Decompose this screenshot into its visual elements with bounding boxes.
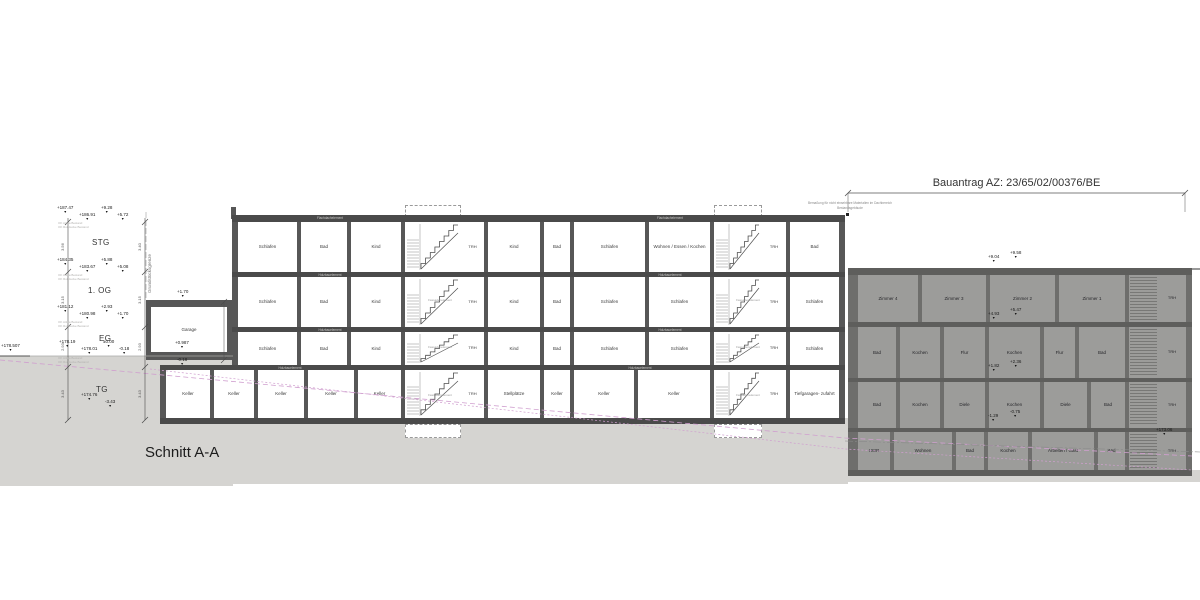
stair-element-label: Fassadenelement <box>425 345 455 349</box>
dark-room: Kochen <box>900 382 940 428</box>
dark-room: Arbeiten / Gast <box>1032 432 1094 470</box>
dark-room: Flur <box>944 327 985 378</box>
svg-text:3.40: 3.40 <box>137 242 142 251</box>
room: Keller <box>358 370 401 418</box>
staircase <box>405 222 461 272</box>
staircase <box>714 277 762 327</box>
floor-slab-label: Holzbauelement <box>630 328 710 332</box>
elevation-marker: -0.18 <box>119 347 129 356</box>
floor-level-label: 1. OG <box>88 286 111 295</box>
room: Bad <box>790 222 839 272</box>
room: Kind <box>488 277 540 327</box>
dark-room: Bad <box>858 382 896 428</box>
room: Schlafen <box>790 277 839 327</box>
staircase <box>405 277 461 327</box>
dark-room: Wohnen <box>894 432 952 470</box>
floor-level-label: STG <box>92 238 110 247</box>
dark-building-elevation-marker: +9.04 <box>988 255 999 264</box>
dark-building-elevation-marker: -1.29 <box>988 414 998 423</box>
stair-hatch <box>1130 277 1157 320</box>
dark-stairwell-label-cell: TRH <box>1158 327 1186 378</box>
dark-room: Bad <box>858 327 896 378</box>
dark-building-slab <box>848 470 1192 476</box>
dark-room: Kochen <box>900 327 940 378</box>
dark-building-elevation-marker: +5.47 <box>1010 308 1021 317</box>
stair-element-label: Fassadenelement <box>733 345 763 349</box>
svg-text:Grundstücksgrenze: Grundstücksgrenze <box>147 253 152 293</box>
dark-building-elevation-marker: +173.06 <box>1156 428 1172 437</box>
elevation-marker: +178.01 <box>81 347 97 356</box>
floor-slab-label: Holzbauelement <box>630 273 710 277</box>
elevation-marker: +184.35 <box>57 258 73 267</box>
staircase <box>714 222 762 272</box>
dark-room: Diele <box>1044 382 1087 428</box>
section-drawing-canvas: Schnitt A-A Bauantrag AZ: 23/65/02/00376… <box>0 0 1200 600</box>
room: Bad <box>544 277 570 327</box>
room: Schlafen <box>238 222 297 272</box>
sub-annotation: OK Rohdecke Bestand <box>58 226 89 230</box>
room: Bad <box>301 332 347 365</box>
stair-element-label: Fassadenelement <box>425 393 455 397</box>
room: Schlafen <box>574 332 645 365</box>
roof-note-line2: Bestandsgebäude <box>786 207 914 211</box>
ground-elevation-marker: +178.507 <box>1 344 20 353</box>
stair-foundation-outline <box>405 424 461 438</box>
dark-room: Zimmer 4 <box>858 275 918 322</box>
elevation-marker: +9.28 <box>101 206 112 215</box>
room: Kind <box>351 222 401 272</box>
section-title: Schnitt A-A <box>145 444 219 461</box>
dark-room: Bad <box>956 432 984 470</box>
dark-building-elevation-marker: +9.58 <box>1010 251 1021 260</box>
stair-hatch <box>1130 329 1157 376</box>
room: Stellplätze <box>488 370 540 418</box>
sub-annotation: OK Rohdecke Bestand <box>58 278 89 282</box>
dark-stairwell-label-cell: TRH <box>1158 432 1186 470</box>
elevation-marker: +5.08 <box>117 265 128 274</box>
room: Schlafen <box>574 277 645 327</box>
elevation-marker: +181.12 <box>57 305 73 314</box>
stairwell-room: TRH <box>461 370 484 418</box>
elevation-marker: +1.70 <box>117 312 128 321</box>
elevation-marker: +5.72 <box>117 213 128 222</box>
base-slab <box>160 418 845 424</box>
elevation-marker: +187.47 <box>57 206 73 215</box>
dark-room: Bad <box>1091 382 1125 428</box>
dark-room: Bad <box>1079 327 1125 378</box>
room: Bad <box>544 332 570 365</box>
room: Schlafen <box>649 332 710 365</box>
room: Keller <box>544 370 570 418</box>
room: Kind <box>488 332 540 365</box>
svg-text:3.15: 3.15 <box>137 295 142 304</box>
dark-room: Kochen <box>988 432 1028 470</box>
bauantrag-dimension-label: Bauantrag AZ: 23/65/02/00376/BE <box>848 177 1185 189</box>
elevation-marker: -3.43 <box>105 400 115 409</box>
floor-slab-label: Holzbauelement <box>290 328 370 332</box>
room: Keller <box>166 370 210 418</box>
stair-element-label: Fassadenelement <box>733 393 763 397</box>
sub-annotation: OK Rohdecke Bestand <box>58 361 89 365</box>
roof-slab-label: Flachdachelement <box>290 216 370 220</box>
elevation-marker: +174.76 <box>81 393 97 402</box>
roof-slab-label: Flachdachelement <box>630 216 710 220</box>
stairwell-room: TRH <box>762 277 786 327</box>
note-marker-square <box>846 213 849 216</box>
stair-element-label: Fassadenelement <box>733 298 763 302</box>
dark-room: Zimmer 2 <box>990 275 1055 322</box>
garage-elevation-marker: +0.987 <box>175 341 189 350</box>
dark-room: Flur <box>1044 327 1075 378</box>
stairwell-room: TRH <box>762 370 786 418</box>
room: Keller <box>258 370 304 418</box>
floor-slab-label: Holzbauelement <box>250 366 330 370</box>
dark-room: Zimmer 3 <box>922 275 986 322</box>
room: Bad <box>544 222 570 272</box>
room: Keller <box>308 370 354 418</box>
room: Keller <box>214 370 254 418</box>
floor-level-label: TG <box>96 385 108 394</box>
dark-stairwell-label-cell: TRH <box>1158 382 1186 428</box>
stairwell-room: TRH <box>762 222 786 272</box>
room: Bad <box>301 222 347 272</box>
elevation-marker: +5.88 <box>101 258 112 267</box>
room: Schlafen <box>649 277 710 327</box>
dark-room: Zimmer 1 <box>1059 275 1125 322</box>
room: Kind <box>488 222 540 272</box>
floor-slab-label: Holzbauelement <box>290 273 370 277</box>
room: Keller <box>638 370 710 418</box>
sub-annotation: OK Rohdecke Bestand <box>58 325 89 329</box>
dark-building-elevation-marker: +2.36 <box>1010 360 1021 369</box>
room: Kind <box>351 332 401 365</box>
stairwell-room: TRH <box>461 222 484 272</box>
stairwell-room: TRH <box>461 332 484 365</box>
dark-room: HWR <box>858 432 890 470</box>
svg-text:2.93: 2.93 <box>137 342 142 351</box>
dark-stairwell-label-cell: TRH <box>1158 275 1186 322</box>
dark-room: Bad <box>1098 432 1125 470</box>
stair-foundation-outline <box>714 424 762 438</box>
room: Schlafen <box>574 222 645 272</box>
stair-hatch <box>1130 434 1157 468</box>
stairwell-room: TRH <box>461 277 484 327</box>
svg-text:3.56: 3.56 <box>60 242 65 251</box>
room: Bad <box>301 277 347 327</box>
room: Schlafen <box>238 332 297 365</box>
dark-building-elevation-marker: -0.75 <box>1010 410 1020 419</box>
svg-text:3.15: 3.15 <box>60 295 65 304</box>
stairwell-room: TRH <box>762 332 786 365</box>
floor-level-label: EG <box>99 334 111 343</box>
elevation-marker: +178.19 <box>59 340 75 349</box>
elevation-marker: +2.93 <box>101 305 112 314</box>
dark-building-slab <box>848 268 1192 275</box>
dark-building-elevation-marker: +4.93 <box>988 312 999 321</box>
room: Schlafen <box>790 332 839 365</box>
stair-hatch <box>1130 384 1157 426</box>
room: Tiefgaragen- zufahrt <box>790 370 839 418</box>
room: Kind <box>351 277 401 327</box>
floor-slab-label: Holzbauelement <box>600 366 680 370</box>
garage-elevation-marker: +1.70 <box>177 290 188 299</box>
room: Wohnen / Essen / Kochen <box>649 222 710 272</box>
stair-element-label: Fassadenelement <box>425 298 455 302</box>
dark-building-elevation-marker: +1.82 <box>988 364 999 373</box>
room: Keller <box>574 370 634 418</box>
room: Schlafen <box>238 277 297 327</box>
garage-elevation-marker: -0.18 <box>177 358 187 367</box>
garage-room: Garage <box>151 307 227 352</box>
dark-room: Diele <box>944 382 985 428</box>
